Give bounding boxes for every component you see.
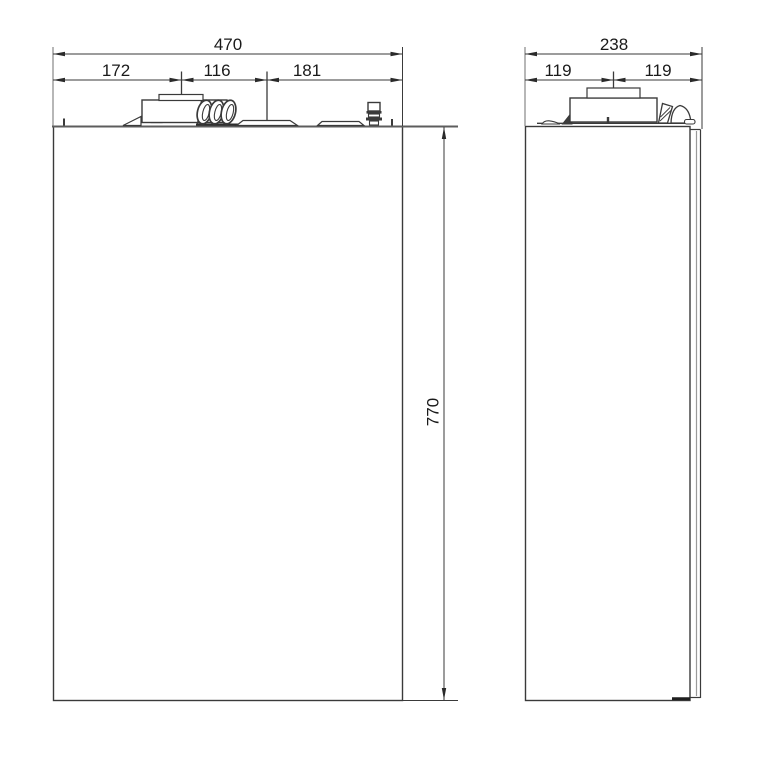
side-dome-foot <box>685 120 696 125</box>
arrow-left <box>525 52 537 56</box>
dim-front-height: 770 <box>424 127 447 700</box>
front-view <box>52 95 458 701</box>
flue-collar-top-side <box>587 88 640 98</box>
arrow-up <box>442 127 446 139</box>
flue-collar-side <box>570 98 657 122</box>
arrow-left <box>53 78 65 82</box>
dim-label-238: 238 <box>600 35 628 54</box>
arrow-left <box>525 78 537 82</box>
arrow-right <box>690 78 702 82</box>
side-left-foot <box>542 121 560 124</box>
arrow-left <box>267 78 279 82</box>
front-left-wedge <box>123 117 141 126</box>
arrow-left <box>182 78 194 82</box>
dim-side-segments: 119 119 <box>525 61 702 88</box>
dimension-drawing-canvas: 470 172 116 181 770 <box>0 0 768 768</box>
dim-label-181: 181 <box>293 61 321 80</box>
arrow-down <box>442 688 446 700</box>
dim-label-119-left: 119 <box>544 61 571 80</box>
side-view <box>526 88 701 701</box>
side-view-outline <box>526 127 691 701</box>
arrow-right <box>391 52 403 56</box>
top-plate-left <box>237 121 298 126</box>
front-top-detail <box>64 95 392 126</box>
dim-label-470: 470 <box>214 35 242 54</box>
valve-neck <box>369 114 380 117</box>
arrow-right <box>690 52 702 56</box>
valve-base <box>370 121 379 125</box>
top-valve <box>366 103 382 126</box>
flue-collar-top-front <box>159 95 203 101</box>
top-plate-right <box>318 122 365 126</box>
corrugated-hose <box>195 99 242 126</box>
dim-side-total-depth: 238 <box>525 35 702 56</box>
side-hatched-bracket <box>659 104 673 124</box>
front-view-outline <box>54 127 403 701</box>
arrow-right <box>391 78 403 82</box>
arrow-right <box>170 78 182 82</box>
side-top-detail <box>537 88 695 124</box>
arrow-left <box>53 52 65 56</box>
valve-cap <box>368 103 380 112</box>
technical-drawing: 470 172 116 181 770 <box>0 0 768 768</box>
dim-label-172: 172 <box>102 61 130 80</box>
dim-label-770: 770 <box>424 398 443 426</box>
dim-label-116: 116 <box>203 61 230 80</box>
arrow-left <box>614 78 626 82</box>
arrow-right <box>602 78 614 82</box>
dim-label-119-right: 119 <box>644 61 671 80</box>
arrow-right <box>255 78 267 82</box>
dim-front-total-width: 470 <box>53 35 403 56</box>
